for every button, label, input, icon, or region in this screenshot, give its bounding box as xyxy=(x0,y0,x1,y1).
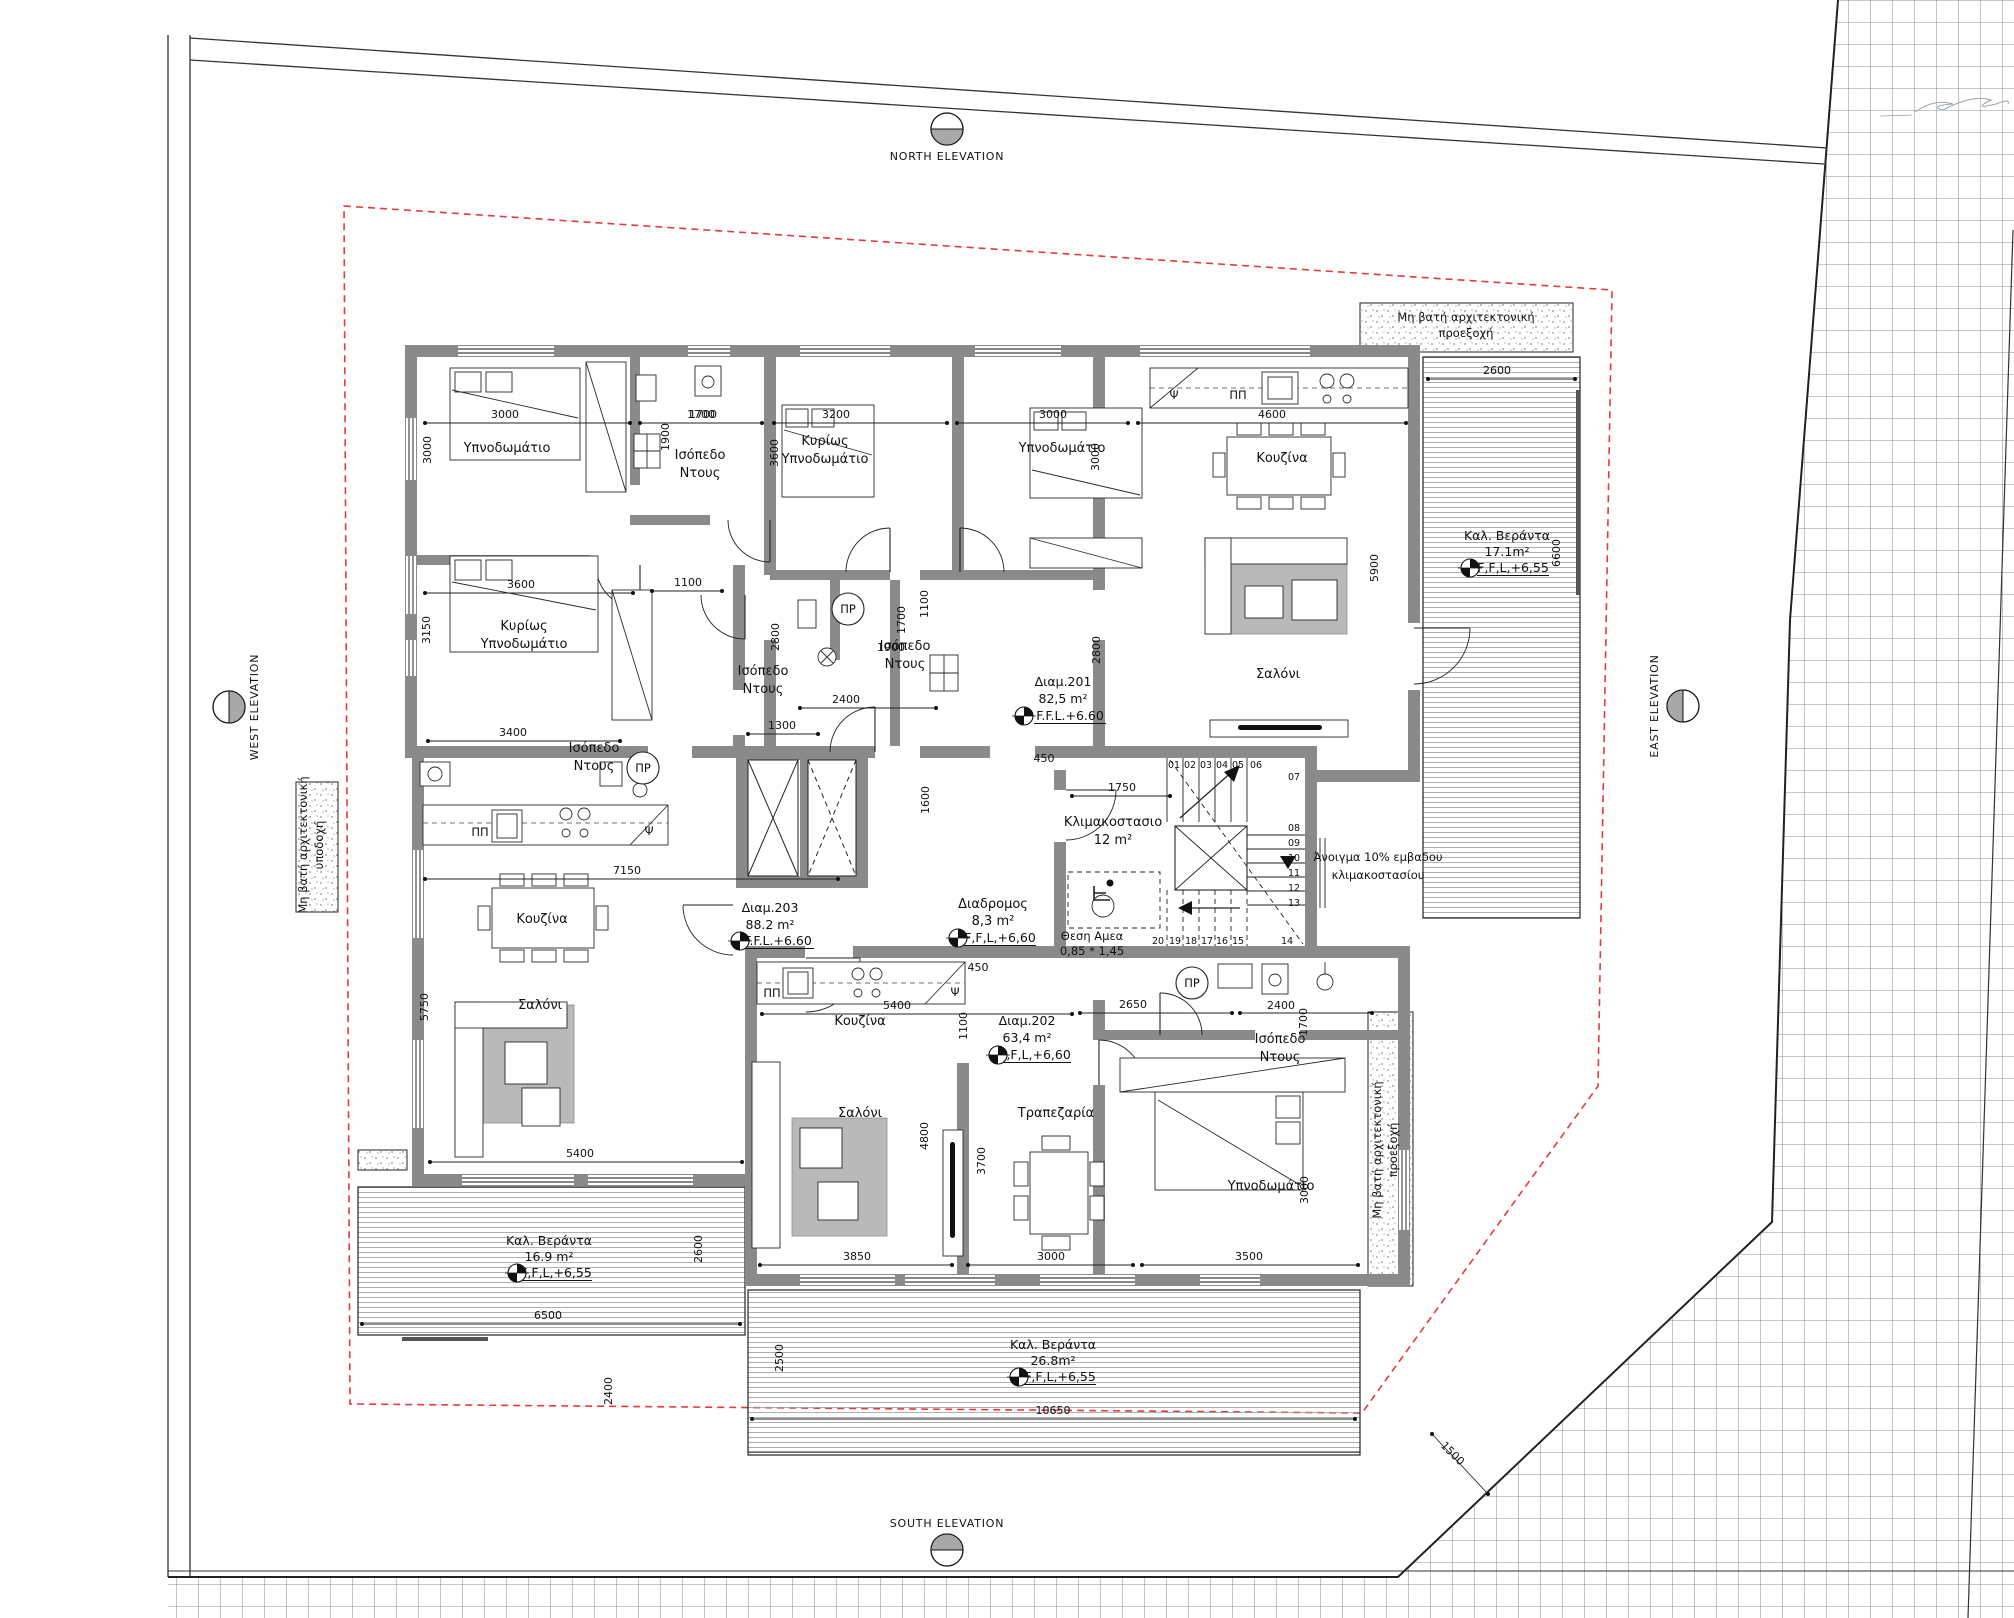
dimension-label: 3600 xyxy=(507,578,535,591)
label-psi-201: Ψ xyxy=(1169,388,1178,402)
stair-step-number: 14 xyxy=(1281,936,1293,947)
room-master-b2: Υπνοδωμάτιο xyxy=(781,452,869,467)
veranda-east-area: 17.1m² xyxy=(1484,544,1529,559)
elevation-label: SOUTH ELEVATION xyxy=(890,1517,1005,1530)
apt-202-area: 63,4 m² xyxy=(1003,1030,1052,1045)
dimension-label: 3600 xyxy=(768,439,781,467)
apt-203-area: 88.2 m² xyxy=(746,917,795,932)
dimension-label: 1750 xyxy=(1108,781,1136,794)
room-master-a2: Υπνοδωμάτιο xyxy=(480,637,568,652)
dimension-label: 7150 xyxy=(613,864,641,877)
room-bedroom-a1: Υπνοδωμάτιο xyxy=(463,441,551,456)
dimension-label: 1500 xyxy=(1438,1439,1467,1468)
dimension-label: 450 xyxy=(1034,752,1055,765)
room-shower-203b: Ντους xyxy=(574,759,615,774)
veranda-east-rail xyxy=(1576,390,1580,595)
room-staircase-area: 12 m² xyxy=(1094,833,1133,848)
label-pp-202: ΠΠ xyxy=(763,986,780,1000)
stair-step-number: 15 xyxy=(1232,936,1244,947)
dimension-label: 1700 xyxy=(689,408,717,421)
dimension-label: 3000 xyxy=(491,408,519,421)
dimension-label: 2400 xyxy=(602,1377,615,1405)
corridor-ffl: F,F,L,+6,60 xyxy=(964,930,1036,945)
dimension-label: 3200 xyxy=(822,408,850,421)
dimension-label: 1900 xyxy=(659,423,672,451)
pr-label: ΠΡ xyxy=(1184,976,1200,990)
note-projection-left2: υποδοχή xyxy=(312,821,326,870)
note-wheelchair: Θεση Αμεα xyxy=(1061,929,1124,943)
label-psi-203: Ψ xyxy=(644,824,653,838)
stair-step-number: 13 xyxy=(1288,898,1300,909)
room-living-201: Σαλόνι xyxy=(1256,667,1300,682)
stair-step-number: 20 xyxy=(1152,936,1164,947)
veranda-east-name: Καλ. Βεράντα xyxy=(1464,528,1550,543)
elevation-half-fill xyxy=(1667,690,1683,722)
apt-203-name: Διαμ.203 xyxy=(742,900,799,915)
room-shower-a: Ισόπεδο xyxy=(675,448,726,463)
room-master-b: Κυρίως xyxy=(801,434,848,449)
furniture xyxy=(420,362,1408,1256)
dimension-label: 2600 xyxy=(692,1235,705,1263)
note-projection-top2: προεξοχή xyxy=(1439,326,1494,340)
stair-step-number: 11 xyxy=(1288,868,1300,879)
dimension-label: 6600 xyxy=(1550,539,1563,567)
stair-step-number: 04 xyxy=(1216,760,1228,771)
dimension-label: 450 xyxy=(968,961,989,974)
dimension-label: 3000 xyxy=(421,436,434,464)
elevation-label: WEST ELEVATION xyxy=(248,654,261,761)
stair-step-number: 03 xyxy=(1200,760,1212,771)
veranda-south-area: 26.8m² xyxy=(1030,1353,1075,1368)
note-stair-opening2: κλιμακοστασίου xyxy=(1332,868,1425,882)
dimension-label: 2400 xyxy=(832,693,860,706)
room-shower-b2: Ντους xyxy=(743,682,784,697)
projection-west-veranda xyxy=(358,1150,407,1170)
dimension-label: 1600 xyxy=(919,786,932,814)
stair-step-number: 12 xyxy=(1288,883,1300,894)
stair-step-number: 08 xyxy=(1288,823,1300,834)
stair-step-number: 02 xyxy=(1184,760,1196,771)
door-swing-arc xyxy=(683,905,733,955)
veranda-east xyxy=(1423,357,1580,918)
room-corridor: Διαδρομος xyxy=(958,897,1028,912)
veranda-west-rail xyxy=(402,1337,488,1341)
room-corridor-area: 8,3 m² xyxy=(972,914,1015,929)
floor-plan-drawing: ΥπνοδωμάτιοΚυρίωςΥπνοδωμάτιοΙσόπεδοΝτους… xyxy=(0,0,2014,1618)
label-pp-203: ΠΠ xyxy=(471,825,488,839)
dimension-label: 1100 xyxy=(674,576,702,589)
room-shower-a2: Ντους xyxy=(680,466,721,481)
stair-step-number: 05 xyxy=(1232,760,1244,771)
floor-plan-page: ΥπνοδωμάτιοΚυρίωςΥπνοδωμάτιοΙσόπεδοΝτους… xyxy=(0,0,2014,1618)
room-master-a: Κυρίως xyxy=(500,619,547,634)
dimension-label: 2800 xyxy=(769,623,782,651)
dimension-label: 1100 xyxy=(918,590,931,618)
dimension-label: 1700 xyxy=(895,606,908,634)
dimension-label: 1100 xyxy=(957,1012,970,1040)
door-swing-arc xyxy=(960,528,1004,572)
veranda-south-ffl: F,F,L,+6,55 xyxy=(1024,1369,1096,1384)
apt-203-ffl: F.F.L.+6.60 xyxy=(744,933,812,948)
stair-step-number: 18 xyxy=(1185,936,1197,947)
door-swing-arc xyxy=(830,707,875,752)
dimension-label: 4600 xyxy=(1258,408,1286,421)
dimension-label: 10650 xyxy=(1036,1404,1071,1417)
apt-201-ffl: F.F.L.+6.60 xyxy=(1036,708,1104,723)
veranda-west-ffl: F,F,L,+6,55 xyxy=(520,1265,592,1280)
dimension-label: 1700 xyxy=(1297,1008,1310,1036)
note-stair-opening: Άνοιγμα 10% εμβαδου xyxy=(1313,850,1442,864)
elevation-half-fill xyxy=(931,129,963,145)
veranda-south-name: Καλ. Βεράντα xyxy=(1010,1337,1096,1352)
dimension-label: 1900 xyxy=(877,641,905,654)
dimension-label: 3000 xyxy=(1039,408,1067,421)
note-wheelchair-size: 0,85 * 1,45 xyxy=(1060,944,1124,958)
stair-step-number: 01 xyxy=(1168,760,1180,771)
room-living-203: Σαλόνι xyxy=(518,998,562,1013)
dimension-label: 5900 xyxy=(1368,554,1381,582)
dimension-label: 2600 xyxy=(1483,364,1511,377)
stair-step-number: 06 xyxy=(1250,760,1262,771)
dimension-label: 3000 xyxy=(1298,1176,1311,1204)
room-kitchen-202: Κουζίνα xyxy=(834,1014,885,1029)
dimension-label: 5750 xyxy=(418,993,431,1021)
room-kitchen-203: Κουζίνα xyxy=(516,912,567,927)
dimension-label: 3000 xyxy=(1037,1250,1065,1263)
room-shower-b: Ισόπεδο xyxy=(738,664,789,679)
dimension-label: 2650 xyxy=(1119,998,1147,1011)
room-shower-202b: Ντους xyxy=(1260,1050,1301,1065)
note-projection-right: Μη βατή αρχιτεκτονική xyxy=(1370,1081,1384,1218)
elevation-label: EAST ELEVATION xyxy=(1648,654,1661,757)
door-swing-arc xyxy=(1160,993,1202,1035)
room-shower-c2: Ντους xyxy=(885,657,926,672)
room-kitchen-201: Κουζίνα xyxy=(1256,451,1307,466)
dimension-label: 3150 xyxy=(420,616,433,644)
dimension-label: 3000 xyxy=(1089,443,1102,471)
stair-step-number: 19 xyxy=(1169,936,1181,947)
ffl-benchmark-icon xyxy=(1012,707,1036,725)
dimension-label: 2400 xyxy=(1267,999,1295,1012)
note-projection-left: Μη βατή αρχιτεκτονική xyxy=(296,776,310,913)
note-projection-right2: προεξοχή xyxy=(1386,1123,1400,1178)
dimension-label: 5400 xyxy=(883,999,911,1012)
veranda-west-area: 16.9 m² xyxy=(525,1249,574,1264)
stair-step-number: 17 xyxy=(1201,936,1213,947)
dimension-label: 5400 xyxy=(566,1147,594,1160)
door-swing-arc xyxy=(846,528,890,572)
label-pp-201: ΠΠ xyxy=(1229,388,1246,402)
apt-201-name: Διαμ.201 xyxy=(1035,674,1092,689)
room-shower-203: Ισόπεδο xyxy=(569,741,620,756)
dimension-label: 2500 xyxy=(773,1344,786,1372)
stair-step-number: 10 xyxy=(1288,853,1300,864)
room-staircase: Κλιμακοστασιο xyxy=(1064,815,1162,830)
dimension-label: 3700 xyxy=(975,1147,988,1175)
dimension-label: 3850 xyxy=(843,1250,871,1263)
dimension-label: 6500 xyxy=(534,1309,562,1322)
apt-202-ffl: F,F,L,+6,60 xyxy=(999,1047,1071,1062)
elevation-label: NORTH ELEVATION xyxy=(890,150,1005,163)
apt-202-name: Διαμ.202 xyxy=(999,1013,1056,1028)
stair-step-number: 16 xyxy=(1216,936,1228,947)
elevation-half-fill xyxy=(229,691,245,723)
dimension-label: 3500 xyxy=(1235,1250,1263,1263)
room-living-202: Σαλόνι xyxy=(838,1106,882,1121)
elevation-half-fill xyxy=(931,1534,963,1550)
door-swing-arc xyxy=(728,520,770,562)
dimension-label: 3400 xyxy=(499,726,527,739)
stair-step-number: 07 xyxy=(1288,772,1300,783)
veranda-east-ffl: F,F,L,+6,55 xyxy=(1477,560,1549,575)
stair-step-number: 09 xyxy=(1288,838,1300,849)
label-psi-202: Ψ xyxy=(950,985,959,999)
apt-201-area: 82,5 m² xyxy=(1039,691,1088,706)
dimension-label: 4800 xyxy=(918,1122,931,1150)
pr-label: ΠΡ xyxy=(635,761,651,775)
dimension-label: 2800 xyxy=(1090,636,1103,664)
room-dining-202: Τραπεζαρία xyxy=(1017,1106,1094,1121)
dimension-label: 1300 xyxy=(768,719,796,732)
veranda-west-name: Καλ. Βεράντα xyxy=(506,1233,592,1248)
pr-label: ΠΡ xyxy=(840,602,856,616)
note-projection-top: Μη βατή αρχιτεκτονική xyxy=(1397,310,1534,324)
